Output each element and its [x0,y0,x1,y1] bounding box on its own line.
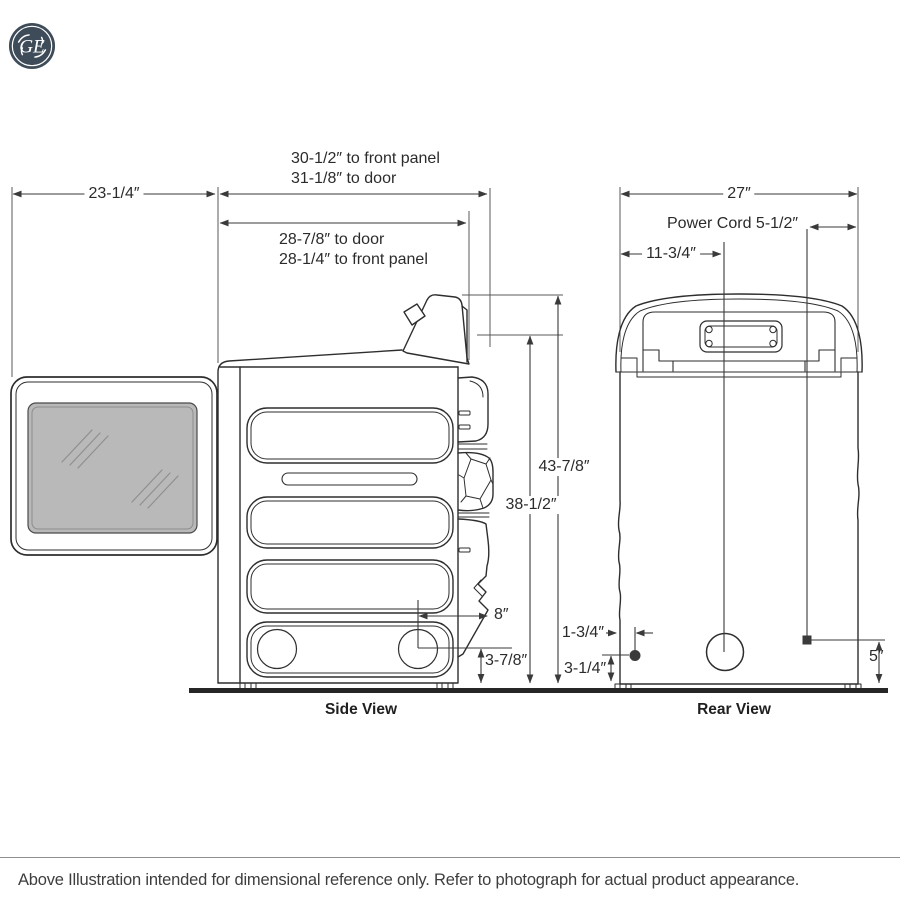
rear-top-cap [616,294,862,372]
cabinet-front-top [218,350,402,683]
dim-cord-inset: 1-3/4″ [558,624,604,642]
dim-rear-to-front-panel: 28-1/4″ to front panel [279,251,428,269]
dim-height-console: 43-7/8″ [534,458,593,476]
dim-depth-to-door: 31-1/8″ to door [291,170,396,188]
spec-sheet-page: { "logo": { "monogram": "GE" }, "diagram… [0,0,900,900]
rear-view-title: Rear View [697,701,771,719]
rear-left-edge [618,372,620,684]
rear-right-edge [857,372,859,684]
dim-door-swing-width: 23-1/4″ [84,185,143,203]
cord-anchor-dot [630,650,641,661]
panel-circle-left [258,630,297,669]
dim-rear-width: 27″ [723,185,754,203]
door-window [28,403,197,533]
dimension-drawing [0,0,900,900]
panel-slot [282,473,417,485]
dim-depth-to-front-panel: 30-1/2″ to front panel [291,150,440,168]
outlet-marker-square [803,636,812,645]
console [403,295,469,364]
panel-3 [247,560,453,613]
dim-cord-exit-height: 3-1/4″ [564,660,606,678]
panel-2 [247,497,453,548]
panel-1 [247,408,453,463]
dim-outlet-height: 5″ [869,648,884,666]
footer-divider [0,857,900,858]
dim-rear-to-door: 28-7/8″ to door [279,231,384,249]
handle-corner-screws [706,326,776,346]
rear-lattice [459,453,493,508]
rear-view-drawing [615,294,862,690]
dim-height-body: 38-1/2″ [501,496,560,514]
floor-line [189,688,888,693]
side-view-title: Side View [325,701,397,719]
side-view-drawing [11,295,493,689]
dim-leg-height: 3-7/8″ [485,652,527,670]
footer-note: Above Illustration intended for dimensio… [18,871,893,890]
dim-leg-offset: 8″ [494,606,509,624]
power-cord-exit [707,634,744,671]
dim-cord-from-left: 11-3/4″ [642,245,700,263]
dim-power-cord: Power Cord 5-1/2″ [667,215,798,233]
